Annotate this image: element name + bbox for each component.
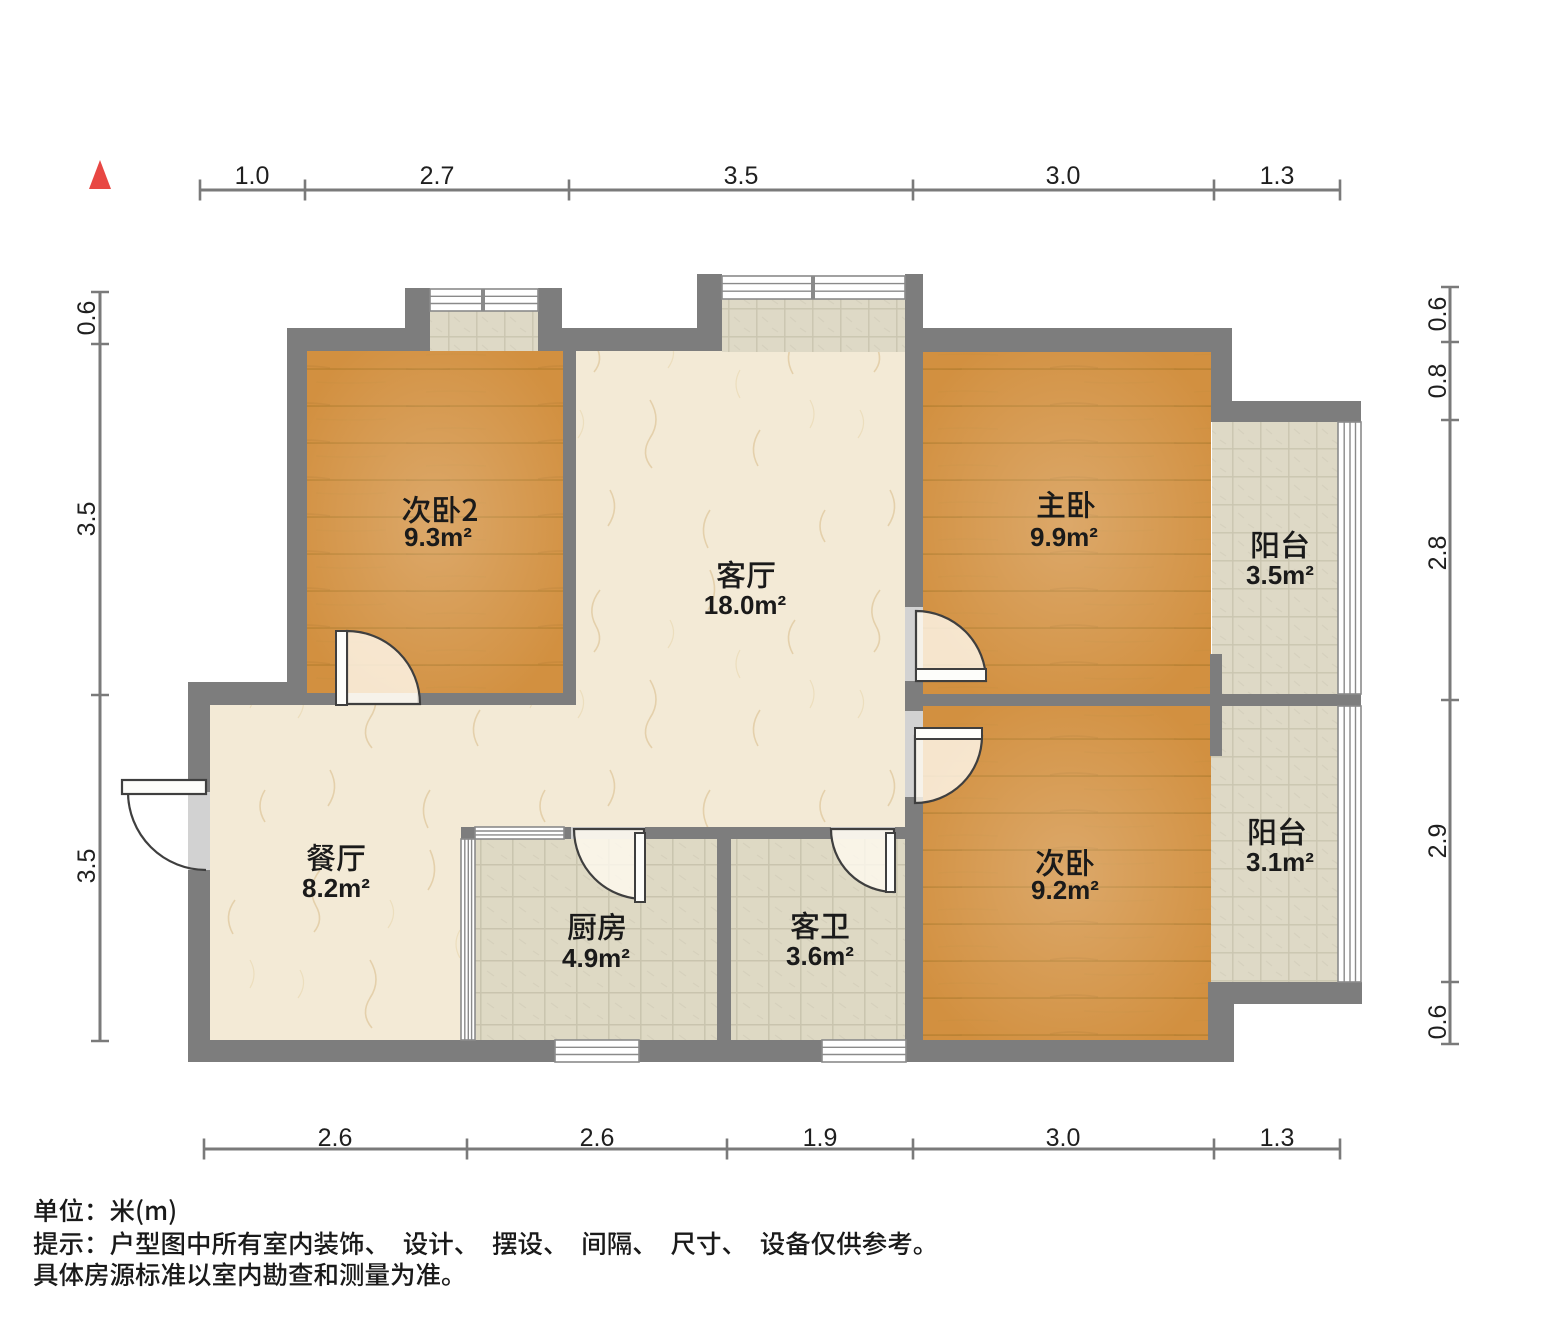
svg-text:3.1m²: 3.1m² xyxy=(1246,847,1314,877)
svg-text:3.5: 3.5 xyxy=(73,849,101,884)
svg-text:2.7: 2.7 xyxy=(420,162,455,190)
svg-text:1.3: 1.3 xyxy=(1260,162,1295,190)
svg-text:9.9m²: 9.9m² xyxy=(1030,522,1098,552)
svg-text:0.8: 0.8 xyxy=(1424,364,1452,399)
svg-text:0.6: 0.6 xyxy=(73,301,101,336)
svg-text:0.6: 0.6 xyxy=(1424,297,1452,332)
svg-text:3.0: 3.0 xyxy=(1046,162,1081,190)
svg-text:1.0: 1.0 xyxy=(235,162,270,190)
svg-text:2.8: 2.8 xyxy=(1424,536,1452,571)
svg-text:3.5: 3.5 xyxy=(724,162,759,190)
svg-text:8.2m²: 8.2m² xyxy=(302,873,370,903)
svg-text:3.5: 3.5 xyxy=(73,502,101,537)
svg-text:18.0m²: 18.0m² xyxy=(704,590,787,620)
svg-text:9.3m²: 9.3m² xyxy=(404,522,472,552)
svg-text:2.9: 2.9 xyxy=(1424,824,1452,859)
svg-text:1.3: 1.3 xyxy=(1260,1124,1295,1152)
svg-text:9.2m²: 9.2m² xyxy=(1031,875,1099,905)
svg-text:2.6: 2.6 xyxy=(318,1124,353,1152)
svg-text:0.6: 0.6 xyxy=(1424,1005,1452,1040)
svg-text:2.6: 2.6 xyxy=(580,1124,615,1152)
svg-text:3.6m²: 3.6m² xyxy=(786,941,854,971)
svg-text:4.9m²: 4.9m² xyxy=(562,943,630,973)
svg-text:1.9: 1.9 xyxy=(803,1124,838,1152)
svg-text:3.5m²: 3.5m² xyxy=(1246,560,1314,590)
svg-text:3.0: 3.0 xyxy=(1046,1124,1081,1152)
